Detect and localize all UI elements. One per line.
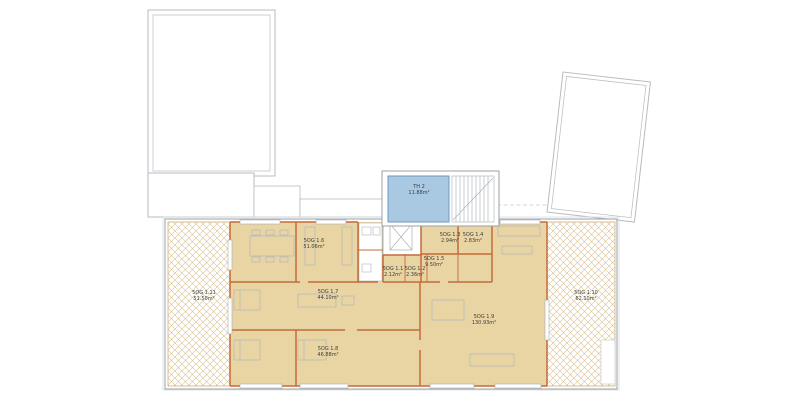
terrace-right	[547, 222, 615, 386]
bathroom-core	[359, 223, 382, 281]
room-label-5og-1-7: 5OG 1.7 44.10m²	[317, 289, 338, 301]
room-label-5og-1-4: 5OG 1.4 2.83m²	[463, 232, 484, 244]
terrace-left	[168, 222, 230, 386]
stairwell	[382, 171, 499, 226]
floor-plan-drawing	[0, 0, 800, 400]
roof-outline-right	[547, 72, 650, 222]
room-label-5og-1-3: 5OG 1.3 2.94m²	[440, 232, 461, 244]
room-label-5og-1-11: 5OG 1.11 51.50m²	[192, 290, 216, 302]
room-label-5og-1-8: 5OG 1.8 46.88m²	[317, 346, 338, 358]
room-label-5og-1-1: 5OG 1.1 2.12m²	[383, 266, 404, 278]
roof-outline-left	[148, 10, 383, 217]
stair-treads	[452, 176, 494, 222]
floor-plan-canvas: TH 2 11.88m² 5OG 1.1 2.12m² 5OG 1.2 2.36…	[0, 0, 800, 400]
room-label-5og-1-2: 5OG 1.2 2.36m²	[405, 266, 426, 278]
room-label-5og-1-5: 5OG 1.5 9.50m²	[424, 256, 445, 268]
room-label-5og-1-10: 5OG 1.10 62.10m²	[574, 290, 598, 302]
room-label-5og-1-9: 5OG 1.9 130.93m²	[472, 314, 496, 326]
room-label-th2: TH 2 11.88m²	[408, 184, 429, 196]
room-label-5og-1-6: 5OG 1.6 51.06m²	[303, 238, 324, 250]
stairwell-th2-room	[388, 176, 449, 222]
